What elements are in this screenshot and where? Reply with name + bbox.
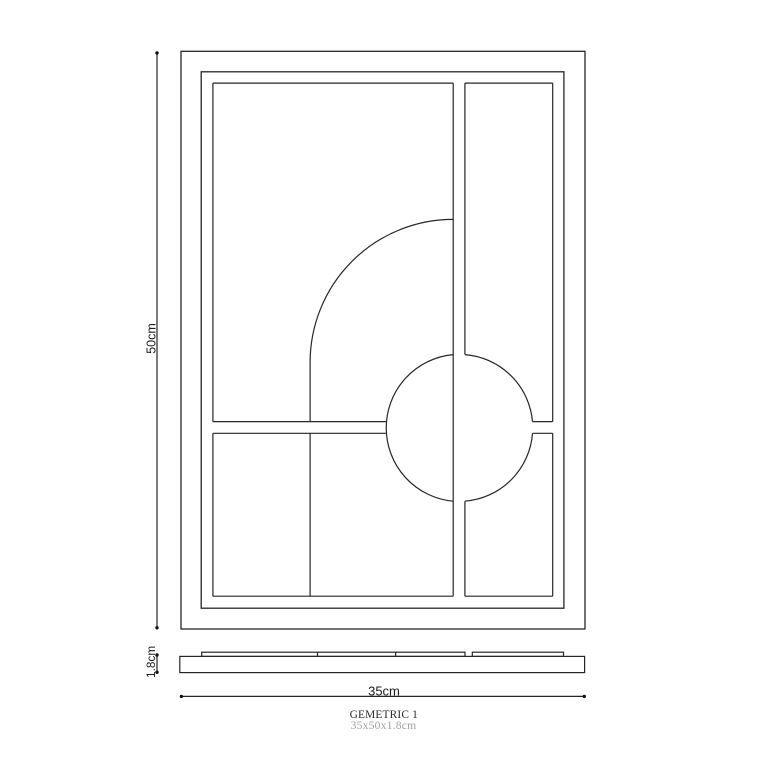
svg-text:35x50x1.8cm: 35x50x1.8cm — [351, 719, 417, 732]
svg-text:1.8cm: 1.8cm — [144, 646, 158, 678]
svg-text:50cm: 50cm — [144, 323, 158, 354]
svg-text:35cm: 35cm — [368, 684, 400, 699]
